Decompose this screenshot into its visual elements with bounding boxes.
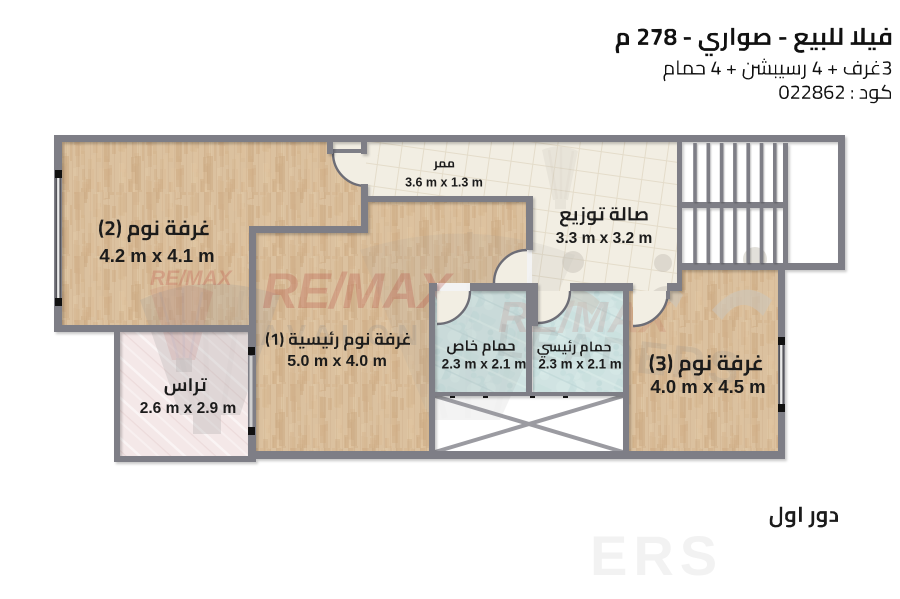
svg-text:2.6 m x 2.9 m: 2.6 m x 2.9 m — [140, 400, 237, 417]
svg-text:4.0 m x 4.5 m: 4.0 m x 4.5 m — [650, 376, 765, 397]
svg-text:3.6 m x 1.3 m: 3.6 m x 1.3 m — [405, 175, 483, 189]
svg-text:2.3 m x 2.1 m: 2.3 m x 2.1 m — [442, 357, 527, 372]
svg-text:3.3 m x 3.2 m: 3.3 m x 3.2 m — [556, 230, 653, 247]
svg-text:AVALON: AVALON — [260, 320, 426, 352]
svg-text:5.0 m x 4.0 m: 5.0 m x 4.0 m — [287, 353, 387, 370]
svg-text:2.3 m x 2.1 m: 2.3 m x 2.1 m — [538, 357, 621, 372]
svg-text:ERS: ERS — [590, 524, 723, 587]
svg-text:4.2 m x 4.1 m: 4.2 m x 4.1 m — [99, 245, 214, 266]
svg-text:RE/MAX: RE/MAX — [262, 263, 454, 319]
